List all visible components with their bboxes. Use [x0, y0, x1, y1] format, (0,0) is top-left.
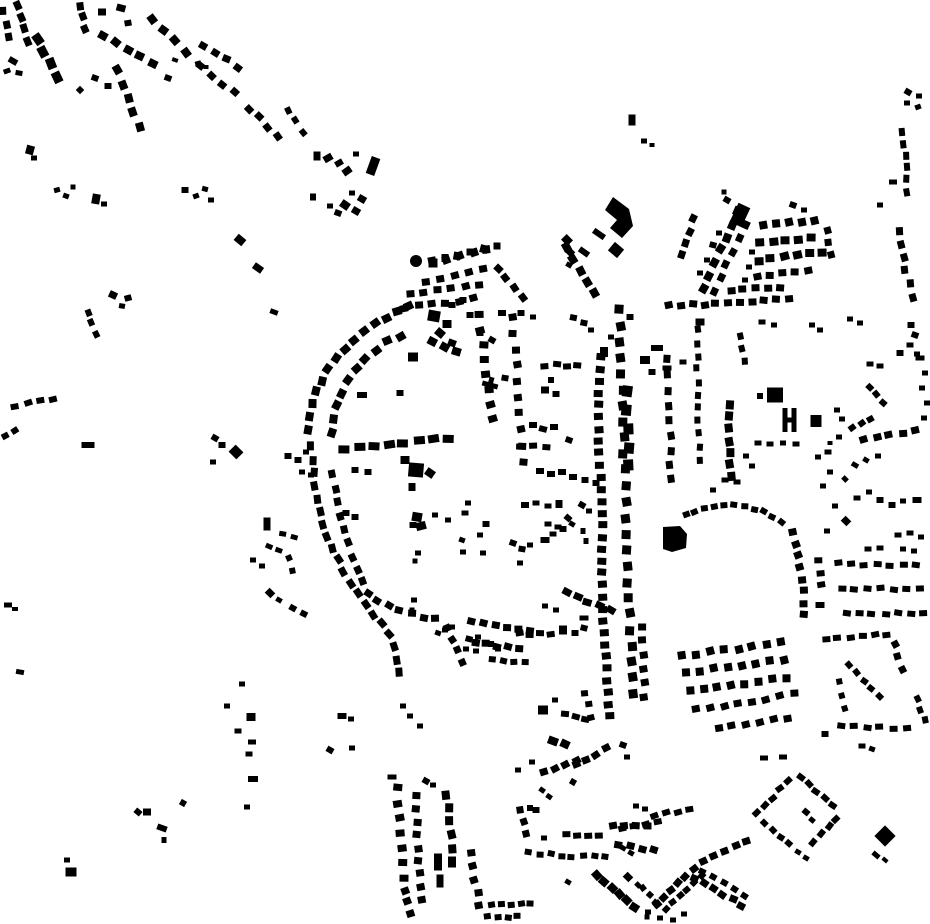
street-building [628, 902, 640, 914]
street-building [681, 238, 690, 248]
street-building [708, 883, 719, 893]
street-building [922, 716, 929, 724]
street-building [697, 443, 704, 450]
building [365, 469, 372, 475]
street-building [453, 645, 462, 654]
building [734, 480, 741, 485]
building [442, 254, 449, 262]
street-building [433, 286, 441, 293]
street-building [810, 216, 820, 226]
street-building [667, 447, 675, 455]
building [794, 848, 802, 855]
street-building [547, 850, 555, 857]
street-building [791, 268, 799, 275]
building [210, 460, 216, 465]
street-building [694, 417, 700, 424]
building [577, 501, 586, 510]
street-building [697, 457, 703, 464]
street-building [785, 295, 794, 303]
building [867, 362, 874, 367]
street-building [788, 528, 797, 536]
street-building [383, 440, 395, 450]
street-building [400, 886, 410, 895]
street-building [779, 251, 790, 261]
street-building [275, 547, 283, 554]
street-building [210, 48, 220, 58]
street-building [539, 767, 549, 776]
street-building [180, 47, 192, 59]
street-building [393, 800, 403, 808]
street-building [898, 665, 907, 674]
street-building [427, 300, 436, 308]
street-building [833, 635, 841, 642]
street-building [24, 399, 34, 407]
street-building [844, 660, 853, 669]
street-building [397, 439, 408, 447]
street-building [900, 253, 909, 263]
building [767, 388, 783, 403]
building [559, 738, 571, 749]
building [449, 302, 456, 308]
building [427, 310, 441, 323]
street-building [368, 442, 379, 451]
street-building [112, 64, 123, 76]
street-building [691, 650, 700, 659]
street-building [415, 301, 423, 308]
street-building [469, 875, 479, 884]
building [327, 204, 333, 209]
street-building [711, 300, 719, 307]
building [811, 415, 822, 427]
street-building [784, 839, 793, 848]
building [709, 241, 717, 249]
street-building [485, 400, 496, 409]
street-building [772, 295, 780, 302]
street-building [394, 606, 403, 615]
street-building [353, 565, 363, 575]
street-building [831, 814, 841, 824]
street-building [910, 426, 919, 435]
building [560, 526, 567, 532]
street-building [279, 531, 287, 537]
street-building [689, 300, 698, 308]
street-building [737, 332, 744, 340]
building [907, 531, 914, 536]
building [916, 94, 922, 99]
street-building [875, 723, 883, 729]
street-building [595, 462, 604, 469]
street-building [584, 833, 592, 839]
building [465, 501, 471, 506]
street-building [524, 848, 532, 855]
building [357, 392, 367, 398]
street-building [146, 13, 158, 25]
building [627, 314, 634, 320]
street-building [695, 353, 701, 360]
street-building [852, 668, 861, 677]
building [156, 823, 167, 832]
street-building [399, 304, 408, 312]
building [629, 115, 636, 126]
building [588, 328, 594, 333]
street-building [474, 889, 483, 897]
street-building [838, 692, 845, 699]
street-building [48, 396, 57, 404]
building [449, 625, 455, 630]
street-building [759, 296, 768, 304]
street-building [36, 397, 45, 404]
building [477, 533, 483, 538]
street-building [784, 217, 794, 227]
building [716, 231, 722, 236]
building [834, 408, 840, 413]
building [651, 345, 663, 351]
street-building [724, 663, 733, 672]
street-building [727, 721, 736, 729]
building [569, 474, 577, 480]
street-building [600, 629, 609, 636]
building [565, 436, 574, 444]
building [8, 56, 19, 66]
street-building [504, 914, 512, 921]
street-building [621, 530, 630, 539]
street-building [206, 70, 217, 81]
street-building [691, 705, 700, 713]
building [434, 327, 446, 339]
building [210, 434, 219, 443]
street-building [767, 513, 776, 521]
street-building [765, 656, 774, 665]
building [434, 630, 441, 637]
street-building [775, 784, 785, 794]
street-building [804, 779, 814, 789]
street-building [503, 642, 513, 651]
building [541, 537, 550, 543]
building [460, 550, 466, 555]
street-building [738, 285, 746, 292]
street-building [489, 656, 497, 663]
building [432, 513, 438, 518]
street-building [817, 581, 826, 588]
street-building [381, 335, 392, 346]
street-building [776, 833, 785, 842]
street-building [662, 905, 671, 914]
street-building [682, 510, 691, 518]
street-building [414, 857, 423, 865]
building [608, 242, 624, 258]
building [501, 374, 509, 381]
street-building [625, 626, 634, 635]
street-building [664, 387, 671, 395]
street-building [317, 376, 327, 387]
street-building [916, 585, 924, 591]
street-building [828, 801, 838, 810]
building [824, 529, 830, 534]
street-building [768, 794, 778, 804]
street-building [754, 678, 762, 686]
building [252, 262, 264, 273]
street-building [623, 459, 634, 470]
street-building [901, 265, 909, 274]
street-building [850, 723, 858, 729]
building [786, 418, 794, 423]
building [12, 607, 18, 611]
building [841, 475, 849, 483]
building [854, 496, 861, 501]
building [851, 461, 860, 469]
street-building [720, 878, 729, 887]
building [334, 209, 343, 217]
building [913, 497, 922, 503]
street-building [783, 776, 793, 786]
building [235, 729, 242, 734]
street-building [890, 726, 898, 732]
street-building [479, 341, 488, 349]
building [357, 194, 367, 204]
street-building [837, 722, 846, 729]
building [124, 294, 132, 302]
building [771, 323, 777, 328]
building [696, 319, 705, 326]
street-building [598, 521, 607, 528]
street-building [649, 845, 659, 854]
street-building [338, 566, 348, 577]
street-building [709, 663, 719, 673]
street-building [76, 2, 84, 11]
street-building [761, 695, 771, 704]
street-building [393, 783, 403, 791]
street-building [479, 619, 489, 628]
building [246, 752, 253, 757]
building [352, 467, 359, 473]
street-building [782, 674, 790, 682]
street-building [620, 514, 630, 524]
building [545, 504, 552, 509]
street-building [31, 32, 45, 46]
building [410, 608, 415, 613]
building [527, 805, 533, 811]
street-building [45, 57, 57, 70]
street-building [797, 218, 806, 227]
street-building [571, 713, 580, 721]
street-building [536, 630, 544, 636]
street-building [890, 586, 899, 593]
street-building [503, 624, 511, 631]
street-building [436, 275, 445, 283]
street-building [123, 44, 135, 55]
building [580, 624, 588, 632]
street-building [368, 609, 379, 620]
street-building [843, 610, 852, 617]
building [353, 152, 359, 157]
street-building [594, 400, 603, 407]
street-building [740, 891, 749, 900]
street-building [769, 237, 779, 246]
street-building [331, 399, 342, 411]
street-building [884, 430, 893, 439]
building [488, 641, 494, 647]
street-building [709, 872, 718, 881]
building [584, 538, 589, 544]
street-building [322, 363, 334, 375]
street-building [19, 23, 28, 34]
building [411, 512, 422, 523]
street-building [591, 852, 599, 859]
building [521, 502, 529, 508]
street-building [597, 474, 606, 481]
street-building [663, 355, 670, 363]
street-building [850, 586, 859, 593]
street-building [580, 852, 587, 858]
street-building [698, 283, 709, 295]
building [550, 424, 558, 430]
street-building [866, 415, 875, 424]
building [339, 199, 351, 211]
street-building [804, 266, 813, 274]
street-building [639, 665, 648, 673]
street-building [487, 414, 498, 423]
street-building [685, 227, 695, 237]
street-building [653, 818, 662, 825]
building [325, 746, 334, 755]
building [541, 836, 547, 841]
street-building [594, 448, 603, 455]
street-building [499, 657, 507, 664]
street-building [677, 302, 686, 310]
building [250, 558, 256, 563]
building [192, 193, 199, 200]
street-building [333, 497, 341, 506]
street-building [5, 32, 13, 41]
building [641, 139, 647, 144]
street-building [329, 414, 338, 424]
street-building [754, 257, 763, 265]
street-building [23, 36, 33, 47]
street-building [538, 786, 546, 794]
street-building [818, 248, 827, 256]
building [542, 604, 548, 609]
street-building [721, 259, 731, 269]
building [572, 630, 579, 636]
street-building [900, 562, 908, 568]
street-building [80, 24, 90, 34]
street-building [780, 236, 789, 244]
building [352, 514, 359, 520]
building [400, 704, 406, 709]
building [477, 330, 484, 336]
street-building [92, 330, 100, 339]
building [530, 315, 536, 320]
street-building [336, 388, 347, 400]
street-building [546, 631, 555, 638]
street-building [332, 485, 341, 494]
street-building [601, 652, 611, 660]
street-building [795, 563, 805, 572]
street-building [398, 859, 407, 866]
street-building [793, 236, 803, 245]
building [529, 422, 537, 428]
street-building [372, 596, 383, 606]
street-building [413, 819, 422, 827]
building [816, 602, 825, 608]
street-building [414, 436, 426, 445]
street-building [766, 272, 774, 279]
street-building [685, 806, 694, 813]
street-building [825, 821, 835, 831]
street-building [759, 220, 768, 229]
street-building [741, 837, 751, 846]
building [265, 588, 276, 599]
street-building [615, 353, 625, 363]
street-building [369, 317, 381, 329]
street-building [724, 423, 733, 433]
building [349, 746, 355, 751]
street-building [384, 600, 394, 610]
building [593, 480, 600, 486]
street-building [811, 787, 821, 796]
street-building [594, 413, 603, 420]
building [862, 456, 870, 463]
building [801, 807, 810, 816]
street-building [639, 651, 648, 659]
building [224, 704, 230, 709]
buildings-layer [0, 0, 930, 923]
street-building [595, 366, 605, 374]
street-building [526, 900, 533, 906]
building [105, 83, 112, 89]
street-building [664, 301, 673, 309]
street-building [793, 550, 803, 559]
street-building [518, 292, 528, 303]
street-building [874, 561, 882, 567]
street-building [859, 633, 867, 639]
street-building [717, 272, 727, 282]
street-building [776, 284, 784, 292]
street-building [661, 808, 670, 816]
street-building [288, 604, 297, 613]
street-building [427, 434, 439, 444]
street-building [395, 667, 403, 676]
street-building [598, 617, 608, 625]
street-building [628, 642, 638, 652]
street-building [765, 254, 774, 262]
building [533, 501, 540, 506]
street-building [513, 378, 522, 386]
building [877, 203, 883, 208]
street-building [720, 702, 730, 711]
building [900, 547, 906, 552]
street-building [859, 562, 867, 569]
street-building [383, 628, 394, 639]
building [623, 872, 634, 883]
street-building [512, 347, 520, 354]
street-building [343, 537, 352, 547]
building [182, 187, 189, 193]
street-building [667, 474, 675, 483]
street-building [553, 361, 562, 368]
building [832, 504, 838, 509]
street-building [621, 481, 631, 491]
building [529, 760, 535, 765]
street-building [598, 580, 607, 588]
street-building [310, 481, 319, 491]
building [897, 350, 904, 356]
street-building [590, 750, 601, 760]
street-building [426, 336, 438, 347]
building [388, 775, 397, 780]
street-building [903, 175, 909, 183]
building [179, 799, 187, 807]
